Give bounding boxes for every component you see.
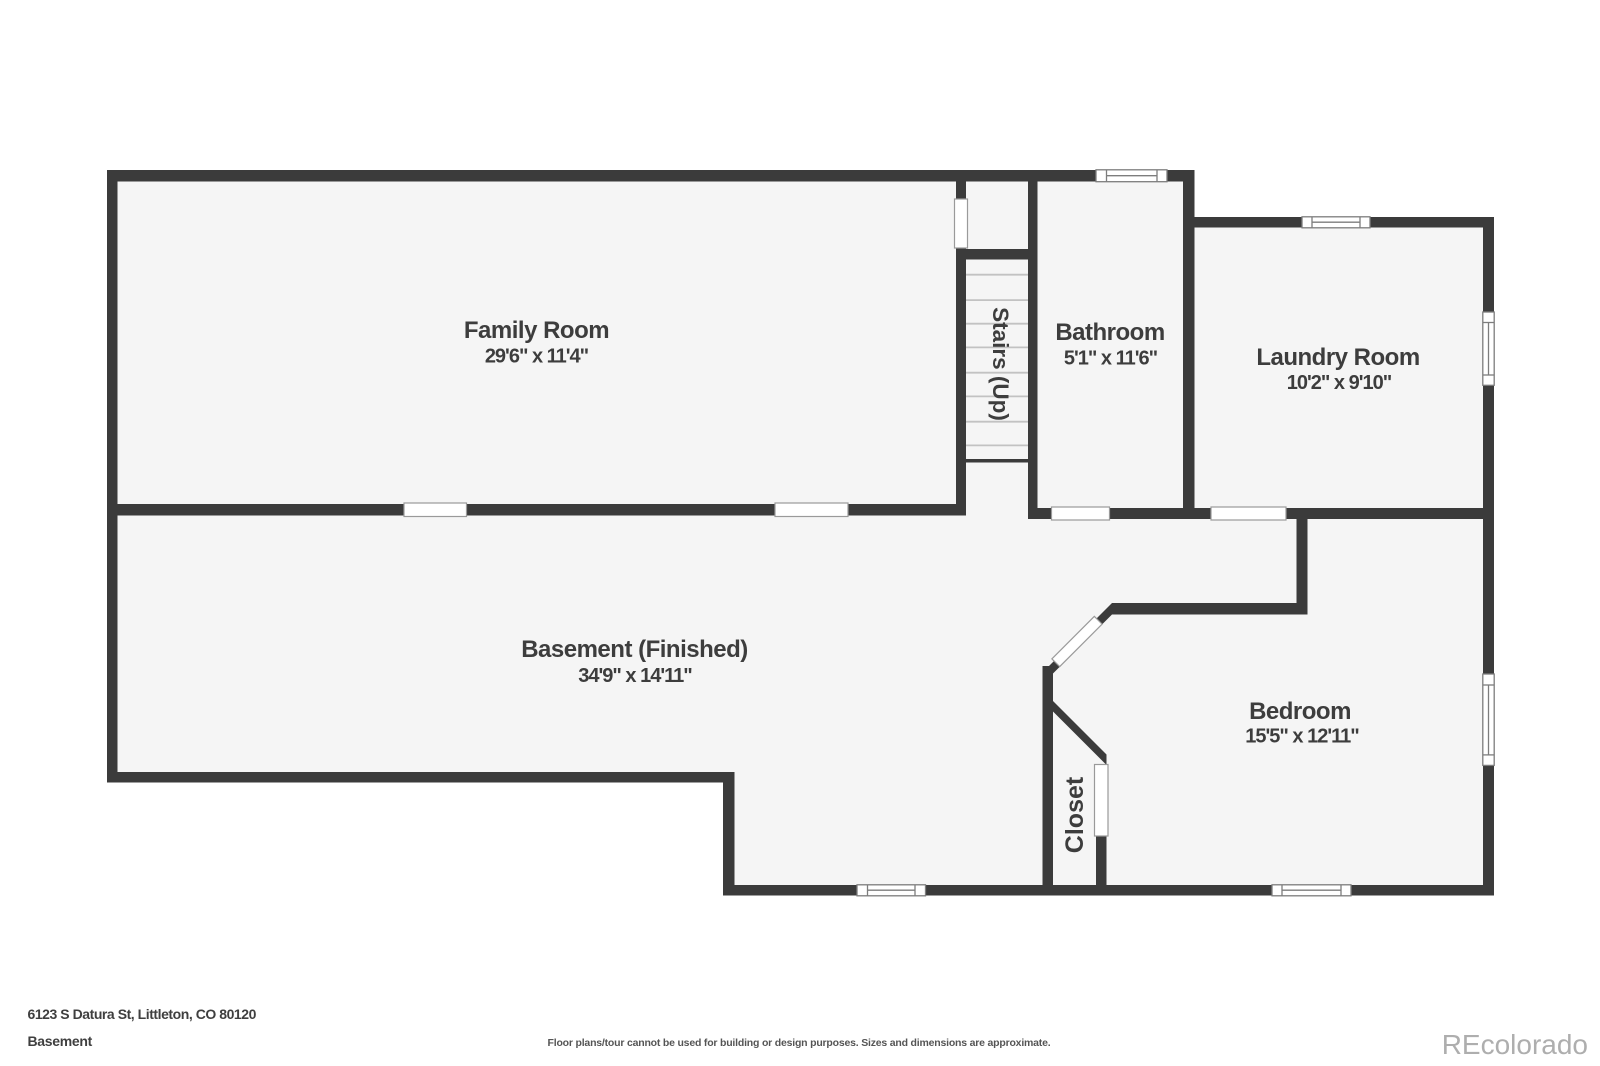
svg-text:Laundry Room: Laundry Room	[1256, 344, 1419, 371]
svg-text:34'9" x 14'11": 34'9" x 14'11"	[578, 665, 692, 687]
svg-text:Bathroom: Bathroom	[1055, 319, 1164, 346]
svg-text:Closet: Closet	[1061, 776, 1089, 853]
svg-text:REcolorado: REcolorado	[1442, 1029, 1588, 1060]
svg-text:29'6" x 11'4": 29'6" x 11'4"	[485, 346, 589, 368]
svg-text:10'2" x 9'10": 10'2" x 9'10"	[1287, 372, 1392, 394]
svg-text:6123 S Datura St, Littleton, C: 6123 S Datura St, Littleton, CO 80120	[28, 1006, 257, 1022]
svg-text:Basement: Basement	[28, 1033, 93, 1049]
svg-text:Stairs (Up): Stairs (Up)	[988, 307, 1013, 421]
svg-text:Family Room: Family Room	[464, 317, 609, 344]
svg-text:5'1" x 11'6": 5'1" x 11'6"	[1064, 348, 1158, 370]
svg-text:15'5" x 12'11": 15'5" x 12'11"	[1245, 726, 1359, 748]
svg-text:Floor plans/tour cannot be use: Floor plans/tour cannot be used for buil…	[548, 1037, 1051, 1049]
svg-text:Bedroom: Bedroom	[1249, 698, 1351, 725]
svg-text:Basement (Finished): Basement (Finished)	[521, 636, 748, 663]
